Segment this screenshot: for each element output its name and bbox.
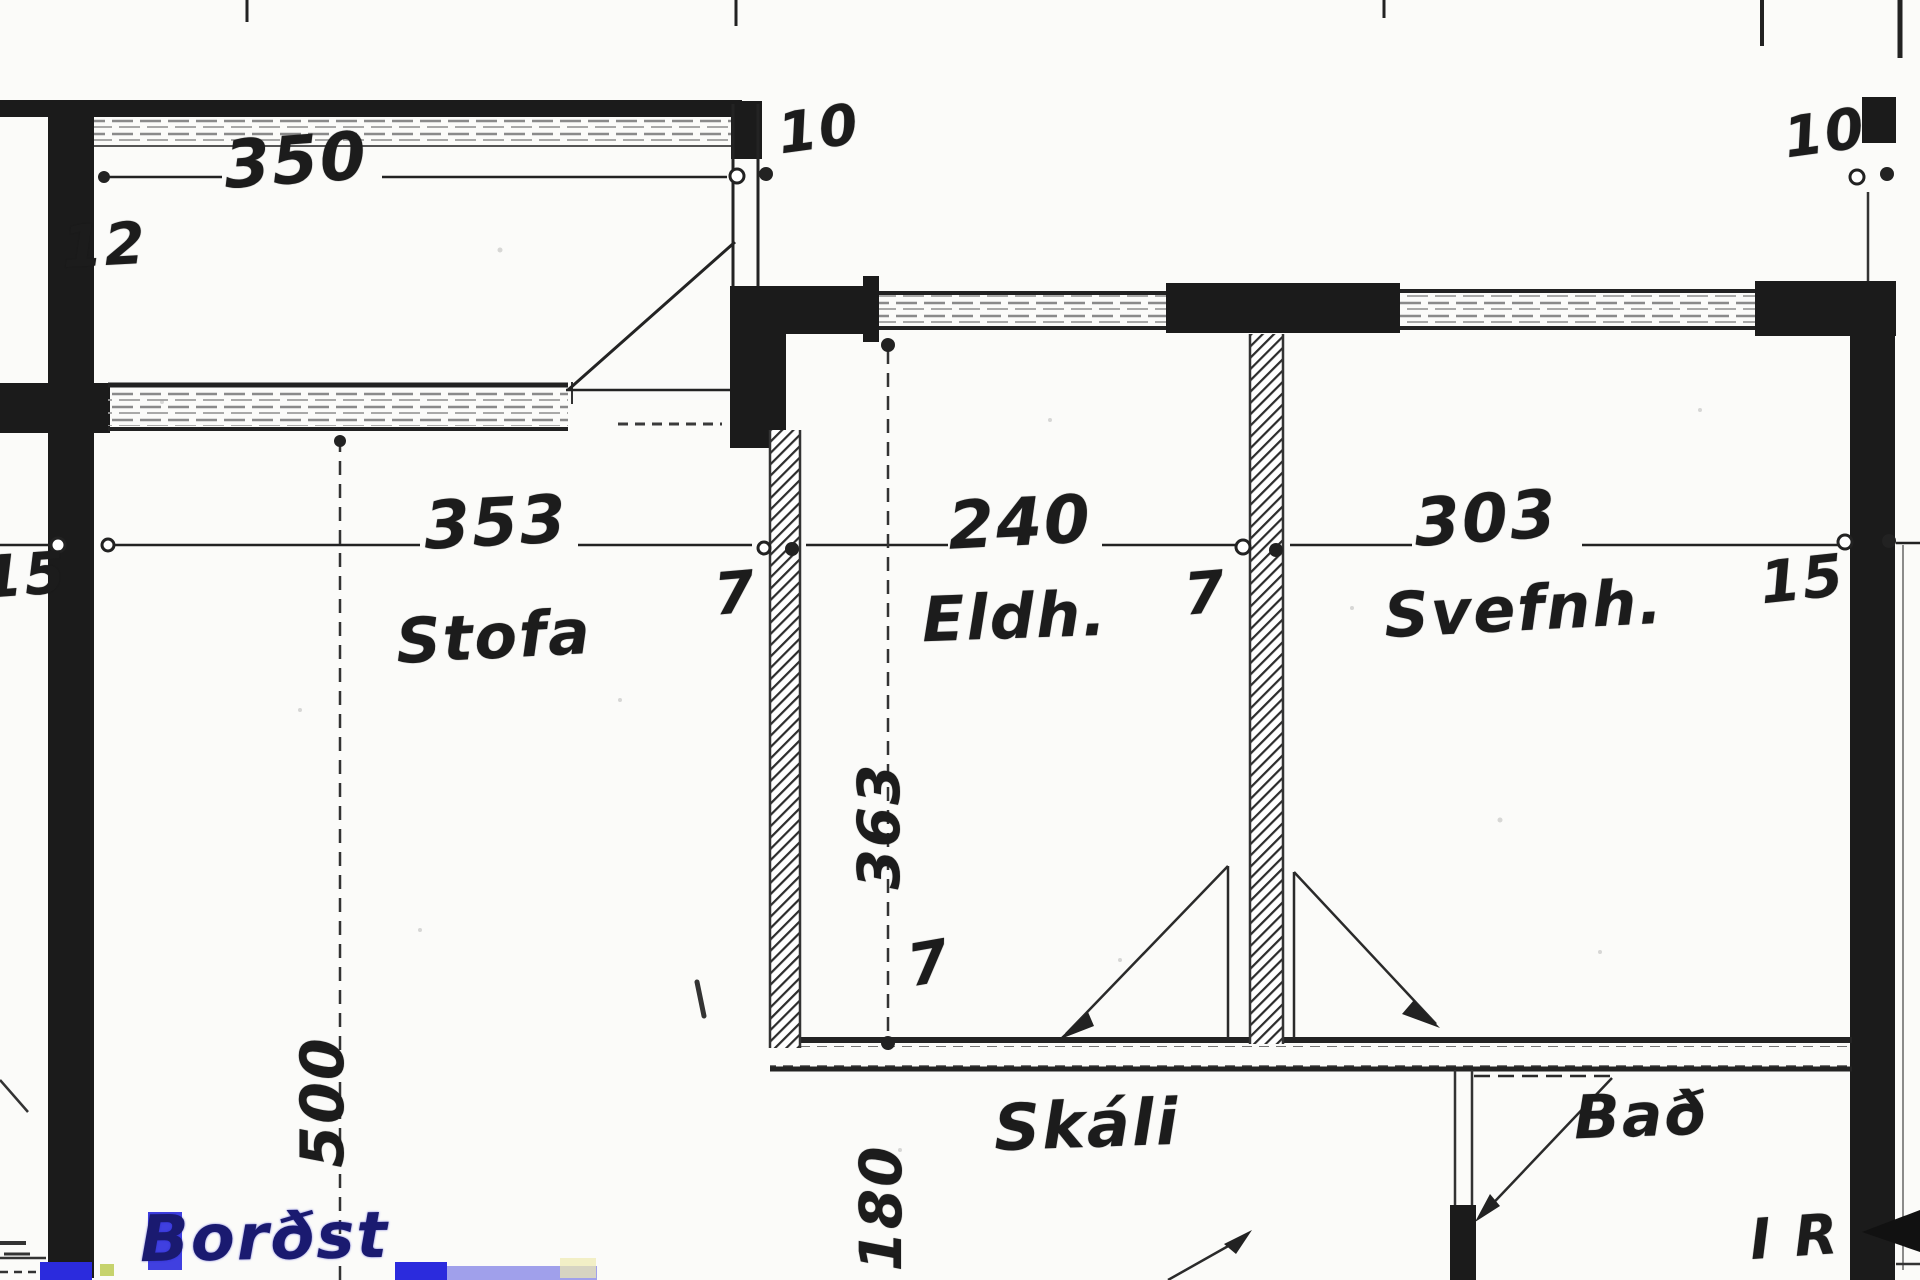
north-wall	[730, 276, 1896, 448]
dim-10-right-label: 10	[1781, 101, 1870, 168]
dim-363-label: 363	[850, 761, 910, 891]
dim-180-label: 180	[852, 1138, 912, 1278]
room-label-stofa: Stofa	[395, 601, 594, 673]
dim-15-right-label: 15	[1757, 546, 1847, 613]
dim-240-label: 240	[946, 486, 1093, 559]
annotation-ir-label: I R	[1748, 1207, 1841, 1269]
dim-303-label: 303	[1412, 481, 1560, 557]
door-swing-line	[568, 242, 735, 390]
green-speck	[100, 1264, 114, 1276]
dim-7-stofa-wall-label: 7	[712, 562, 759, 623]
stofa-window-band	[108, 382, 572, 429]
dim-350-label: 350	[222, 123, 370, 199]
left-edge-marks	[0, 1080, 46, 1272]
dim-10-left-label: 10	[775, 97, 864, 164]
room-label-svefnh: Svefnh.	[1383, 571, 1666, 648]
dim-7-divider-wall-label: 7	[1182, 562, 1229, 623]
party-wall-stub	[0, 383, 110, 433]
dim-12-label: 12	[61, 214, 149, 276]
top-outer-wall	[0, 100, 742, 146]
floorplan-page: 350 12 10 10 15 353 Stofa 7 240 Eldh. 7 …	[0, 0, 1920, 1280]
south-wall	[770, 1040, 1852, 1069]
dim-line-350	[98, 167, 773, 183]
top-edge-tick-marks	[247, 0, 1900, 58]
kitchen-door	[1058, 866, 1228, 1040]
kitchen-window	[879, 293, 1166, 328]
room-label-skali: Skáli	[993, 1091, 1181, 1161]
dim-15-left-label: 15	[0, 543, 69, 607]
stofa-kitchen-wall	[770, 430, 800, 1048]
stray-pen-tick	[697, 982, 704, 1016]
bedroom-door	[1294, 872, 1440, 1038]
skali-door	[1168, 1230, 1252, 1280]
bedroom-window	[1400, 291, 1755, 328]
yellow-speck	[560, 1258, 596, 1278]
room-label-eldh: Eldh.	[921, 583, 1109, 651]
bath-partition-wall	[1450, 1070, 1476, 1280]
kitchen-vertical-dim	[881, 338, 895, 1050]
dim-500-label: 500	[293, 1027, 357, 1177]
kitchen-bedroom-wall	[1250, 334, 1283, 1044]
room-label-bad: Bað	[1573, 1084, 1708, 1149]
dim-353-label: 353	[422, 486, 569, 559]
top-window-band	[62, 117, 733, 145]
right-outer-wall	[1850, 281, 1895, 1280]
annotation-bordst-label: Borðst	[139, 1204, 389, 1272]
